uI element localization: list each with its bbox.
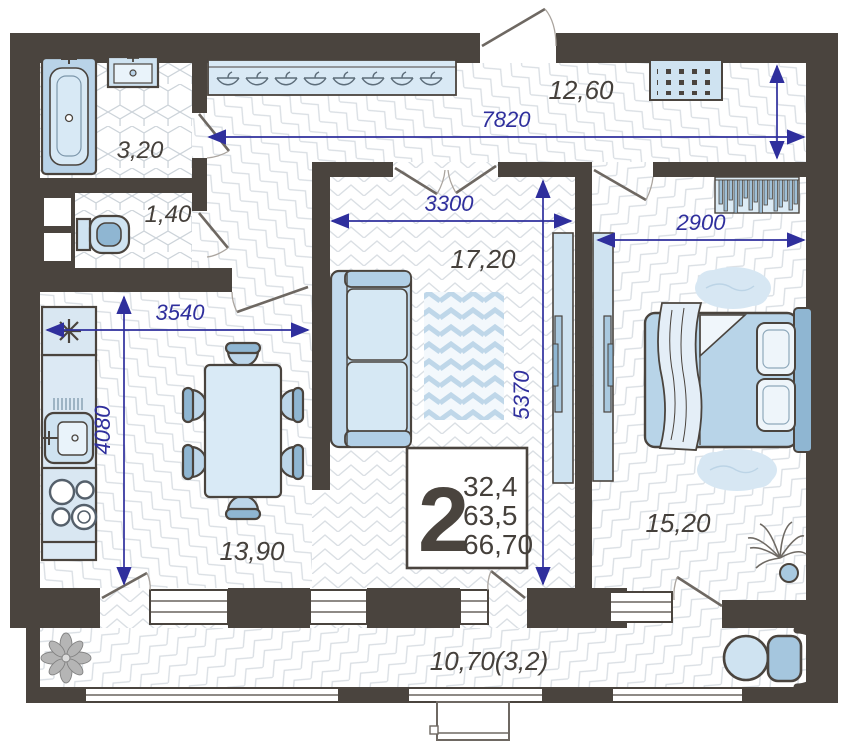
dim-3300: 3300 <box>425 191 475 216</box>
rug-icon <box>695 267 771 309</box>
coat-rack-icon <box>208 60 456 95</box>
bathtub-icon <box>42 52 96 174</box>
bathroom-label: 3,20 <box>117 137 164 164</box>
dim-5370: 5370 <box>509 370 534 420</box>
window <box>310 590 367 624</box>
dim-3540: 3540 <box>156 300 206 325</box>
window <box>460 590 488 624</box>
toilet-icon <box>77 216 129 253</box>
window <box>150 590 228 624</box>
area-total: 66,70 <box>463 529 533 560</box>
fridge-icon <box>42 307 96 355</box>
rooms-count: 2 <box>418 469 469 571</box>
dim-2900: 2900 <box>676 210 727 235</box>
doormat-icon <box>650 60 722 100</box>
dim-7820: 7820 <box>482 107 532 132</box>
area-living: 32,4 <box>463 471 518 502</box>
blanket <box>658 303 702 450</box>
tv-panel-icon <box>553 233 573 483</box>
wardrobe-icon <box>715 177 799 213</box>
sofa-icon <box>331 271 411 447</box>
dim-4080: 4080 <box>90 405 115 455</box>
balcony-floor <box>40 628 806 688</box>
balcony-table-icon <box>724 636 768 680</box>
kitchen-unit <box>42 307 96 560</box>
window <box>610 592 672 622</box>
balcony-label: 10,70(3,2) <box>430 646 549 676</box>
hallway-label: 12,60 <box>548 75 614 105</box>
balcony-glazing <box>40 688 806 702</box>
exterior-appendix <box>430 702 509 740</box>
tv-panel-icon <box>593 233 613 481</box>
living-label: 17,20 <box>450 244 516 274</box>
entrance-door <box>482 9 556 46</box>
washbasin-icon <box>108 52 158 87</box>
floor-plan: 7820 3300 2900 3540 4080 5370 3,20 1,40 … <box>0 0 848 752</box>
area-usable: 63,5 <box>463 500 518 531</box>
rug-icon <box>697 449 777 491</box>
toilet-label: 1,40 <box>145 201 192 228</box>
dining-table-icon <box>205 365 281 497</box>
kitchen-label: 13,90 <box>219 536 285 566</box>
bed-icon <box>645 303 812 452</box>
info-box: 2 32,4 63,5 66,70 <box>407 448 533 571</box>
stove-icon <box>42 468 96 542</box>
bedroom-label: 15,20 <box>645 508 711 538</box>
rug-icon <box>424 292 504 420</box>
